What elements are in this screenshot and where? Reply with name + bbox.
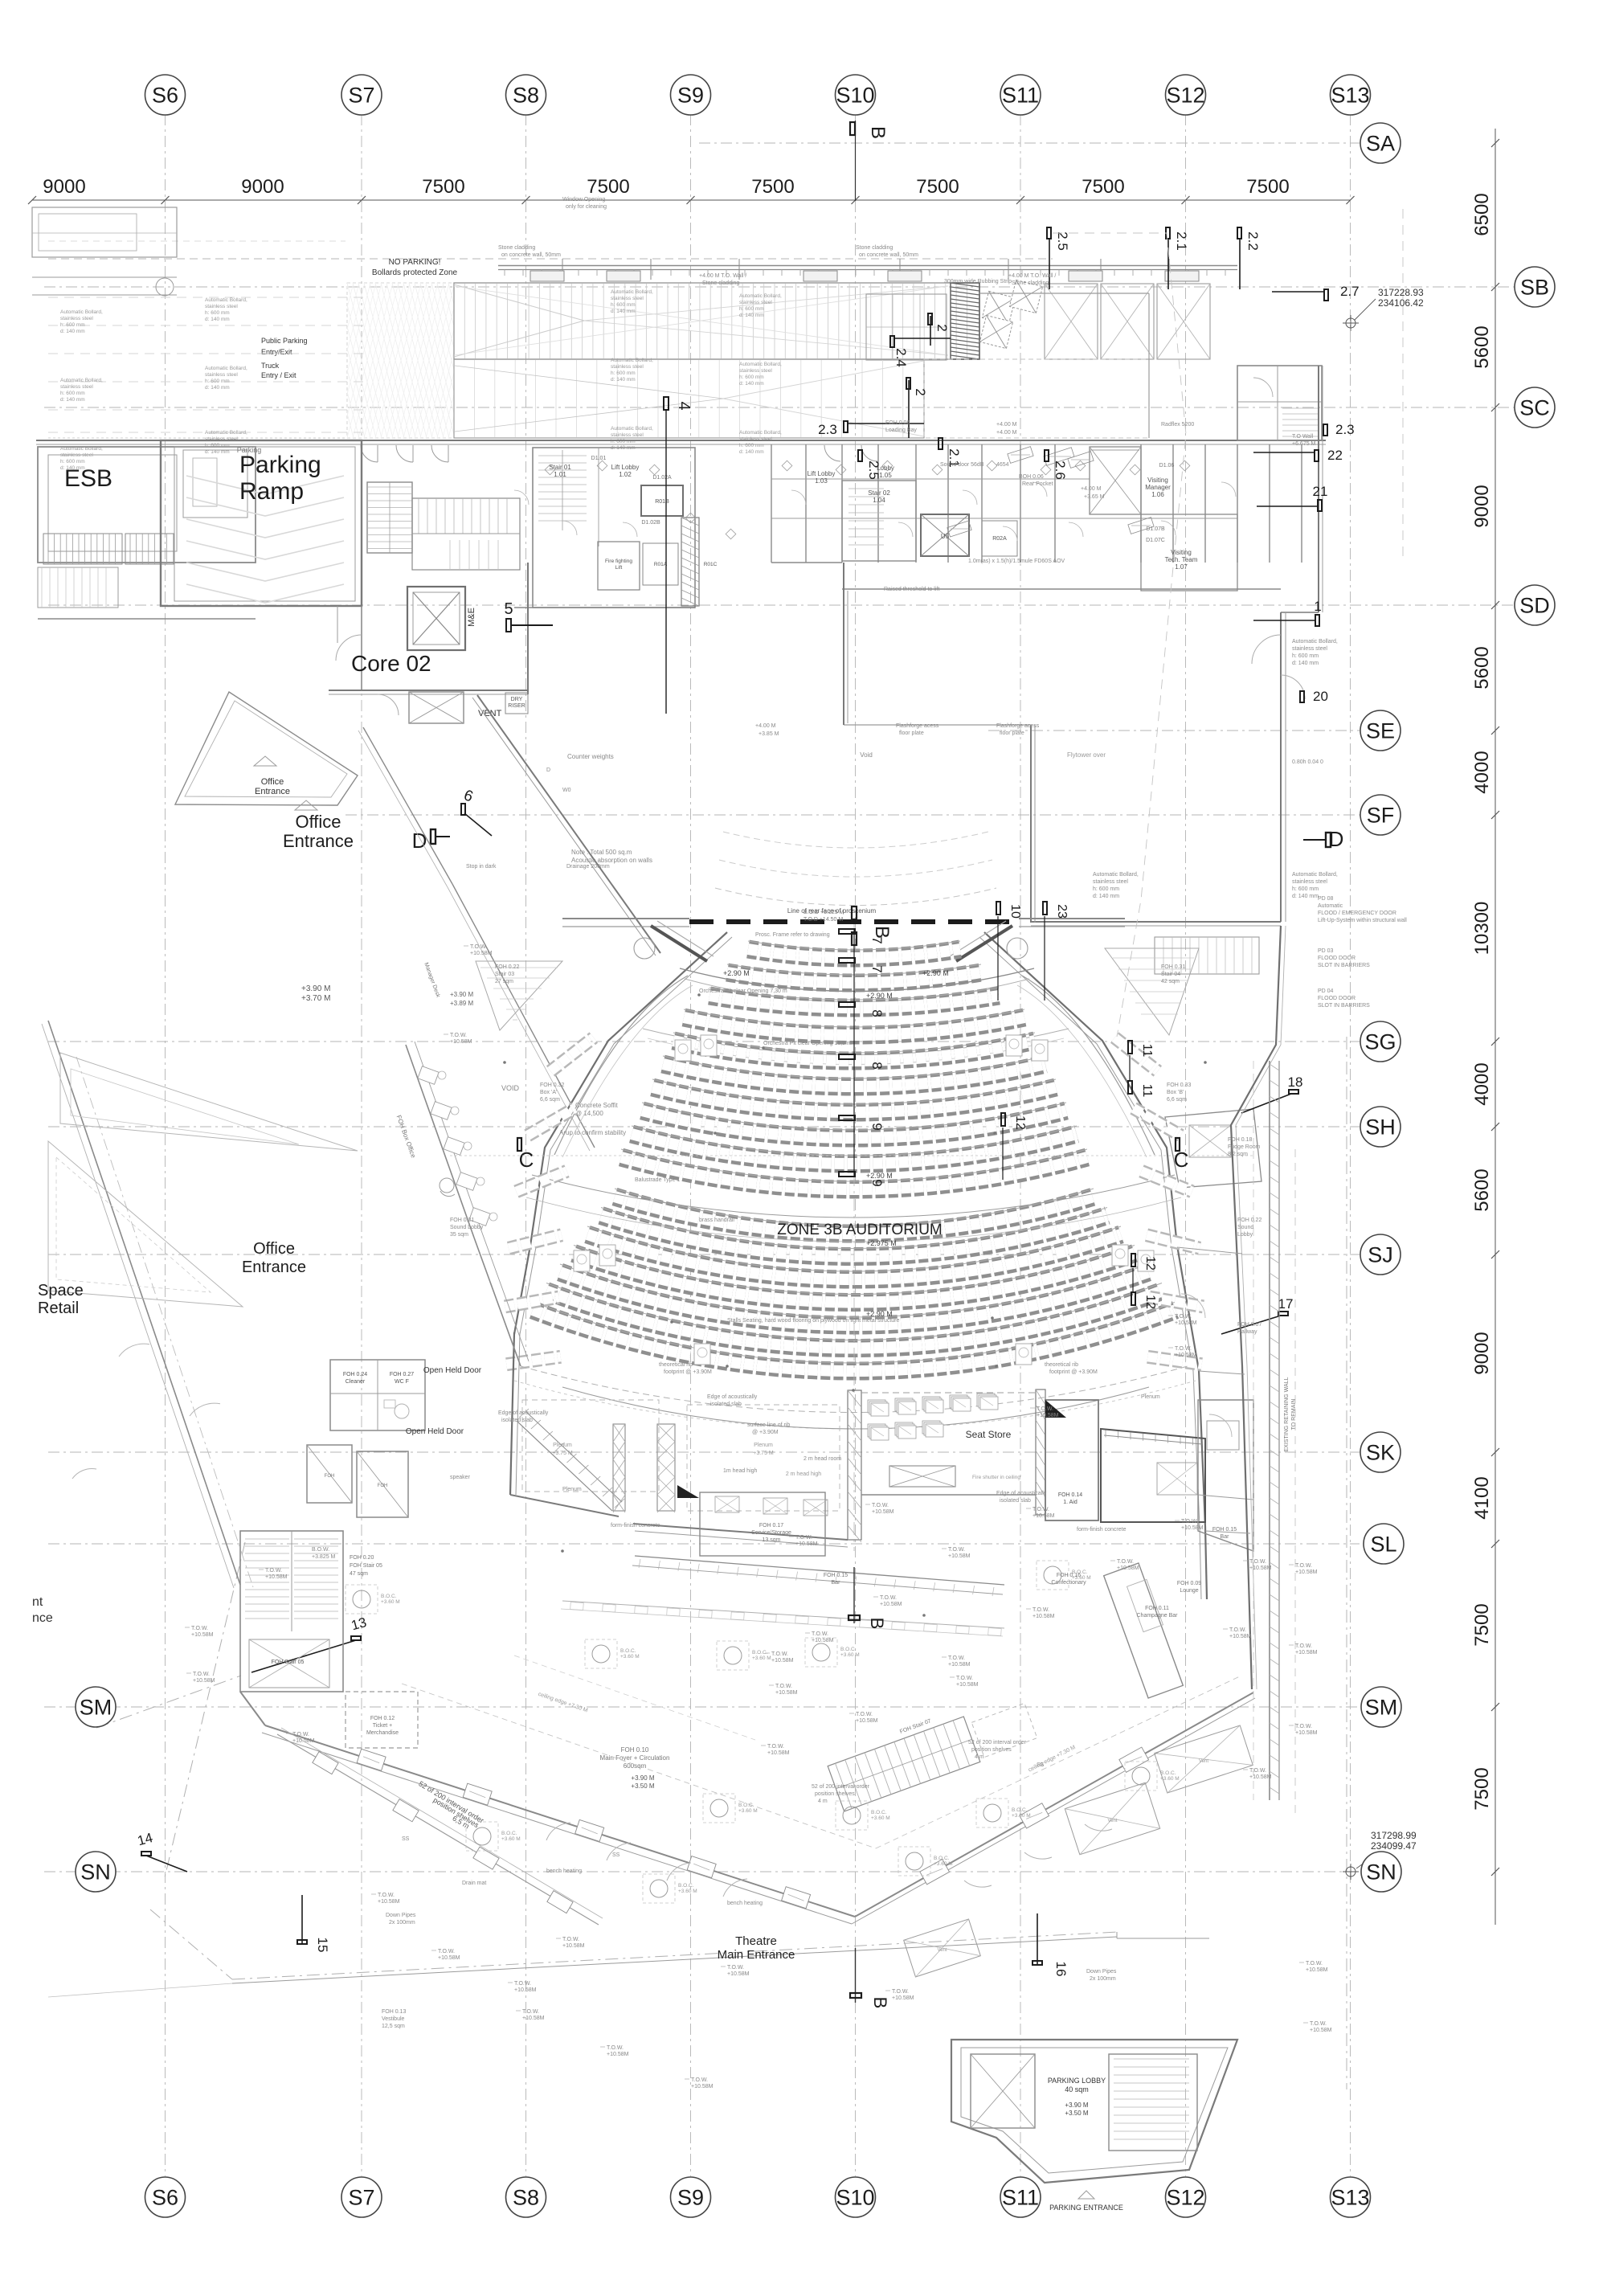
svg-text:+10.58M: +10.58M [775,1690,798,1696]
svg-text:22: 22 [1327,448,1343,463]
svg-text:d: 140 mm: d: 140 mm [611,309,636,314]
svg-text:Vestibule: Vestibule [382,2016,405,2022]
svg-text:brass handrail: brass handrail [699,1218,734,1223]
svg-text:2 m head room: 2 m head room [803,1456,841,1462]
svg-text:SLOT IN BARRIERS: SLOT IN BARRIERS [1318,963,1370,968]
svg-text:FLOOD DOOR: FLOOD DOOR [1318,956,1356,961]
svg-text:Lift: Lift [615,565,623,571]
svg-text:+6.675 M: +6.675 M [1292,441,1316,447]
svg-text:7500: 7500 [1082,176,1124,198]
svg-text:Edge of acoustically: Edge of acoustically [707,1394,758,1400]
svg-text:D1.07C: D1.07C [1146,538,1165,543]
svg-text:T.O.W.: T.O.W. [1310,2021,1327,2027]
svg-text:FLOOD / EMERGENCY DOOR: FLOOD / EMERGENCY DOOR [1318,911,1396,916]
svg-text:15: 15 [315,1938,330,1953]
svg-text:Flytower over: Flytower over [1067,751,1106,759]
svg-text:B.O.C.: B.O.C. [934,1856,950,1861]
svg-text:stainless steel: stainless steel [1292,879,1327,885]
svg-text:T.O.W.: T.O.W. [1032,1507,1049,1512]
svg-text:S8: S8 [513,2186,539,2210]
svg-text:T.O.W.: T.O.W. [1249,1768,1266,1774]
svg-text:SE: SE [1366,719,1395,743]
svg-text:d: 140 mm: d: 140 mm [1093,894,1119,899]
svg-text:+10.58M: +10.58M [470,951,493,956]
svg-text:9: 9 [869,1179,885,1186]
svg-text:FOH 0.13: FOH 0.13 [382,2009,406,2015]
svg-text:Truck: Truck [261,362,280,370]
svg-text:FOH 0.06: FOH 0.06 [885,420,910,426]
svg-text:+2.90 M: +2.90 M [922,969,949,977]
svg-text:PARKING ENTRANCE: PARKING ENTRANCE [1049,2204,1123,2212]
svg-text:7500: 7500 [1471,1603,1493,1646]
svg-text:2.4: 2.4 [893,348,909,367]
svg-text:Automatic Bollard,: Automatic Bollard, [205,430,247,436]
svg-text:+3.90 M: +3.90 M [301,984,330,993]
svg-text:Cleaner: Cleaner [346,1379,366,1385]
svg-text:T.O.W.: T.O.W. [856,1712,873,1717]
svg-text:FOH Stair 05: FOH Stair 05 [272,1660,305,1665]
svg-text:Automatic Bollard,: Automatic Bollard, [1292,639,1338,645]
svg-text:Orchestra Pit clear Opening 16: Orchestra Pit clear Opening 16,5 m [763,1041,852,1046]
svg-text:+3.75 M: +3.75 M [753,1451,774,1456]
svg-text:@ +3.90M: @ +3.90M [752,1430,779,1435]
svg-text:TO REMAIN: TO REMAIN [1291,1399,1297,1430]
svg-text:ZONE 3B AUDITORIUM: ZONE 3B AUDITORIUM [777,1222,943,1238]
svg-text:T.O.W.: T.O.W. [1229,1627,1246,1633]
svg-text:9: 9 [869,1123,885,1130]
svg-text:12: 12 [1143,1256,1157,1271]
svg-text:7: 7 [869,965,885,972]
svg-text:S7: S7 [348,2186,374,2210]
svg-text:PD 08: PD 08 [1318,896,1334,902]
svg-text:2.6: 2.6 [1053,460,1068,480]
svg-text:stainless steel: stainless steel [205,372,238,378]
svg-text:Visiting: Visiting [1147,477,1168,484]
svg-text:+4.00 M T.O. Wall /: +4.00 M T.O. Wall / [699,273,746,279]
svg-text:Entry / Exit: Entry / Exit [261,371,296,379]
svg-text:S9: S9 [677,84,704,108]
svg-text:Office: Office [253,1240,295,1258]
svg-text:floor plate: floor plate [899,731,924,736]
svg-text:+10.58M: +10.58M [450,1039,472,1045]
svg-text:+10.58M: +10.58M [1295,1650,1318,1655]
svg-text:+3.60 M: +3.60 M [1012,1813,1031,1819]
svg-text:+3.60 M: +3.60 M [738,1808,758,1814]
svg-text:T.O.W.: T.O.W. [522,2009,539,2015]
svg-text:nt: nt [32,1595,43,1609]
svg-text:Automatic Bollard,: Automatic Bollard, [611,358,653,363]
svg-text:+3.50 M: +3.50 M [1065,2110,1088,2117]
svg-text:d: 140 mm: d: 140 mm [739,449,764,455]
svg-text:Entry/Exit: Entry/Exit [261,348,292,356]
svg-text:+3.90 M: +3.90 M [631,1774,654,1782]
svg-text:Entrance: Entrance [255,787,290,796]
svg-text:stainless steel: stainless steel [205,304,238,309]
svg-text:h: 600 mm: h: 600 mm [205,310,230,316]
svg-text:Loading Bay: Loading Bay [885,428,917,433]
svg-text:B.O.C.: B.O.C. [1072,1570,1088,1575]
svg-text:+10.58M: +10.58M [1249,1774,1272,1780]
svg-text:Stone cladding: Stone cladding [856,245,893,251]
svg-text:Bar: Bar [1221,1534,1230,1540]
svg-text:2x 100mm: 2x 100mm [389,1920,415,1926]
svg-text:R01B: R01B [655,499,669,505]
svg-text:Open Held Door: Open Held Door [423,1366,482,1375]
svg-text:7: 7 [869,936,885,943]
svg-text:position shelves: position shelves [815,1791,855,1797]
svg-text:27 sqm: 27 sqm [495,979,513,984]
svg-text:Merchandise: Merchandise [366,1730,399,1736]
svg-text:+3.60 M: +3.60 M [752,1655,771,1661]
svg-text:B.O.C.: B.O.C. [501,1831,517,1836]
svg-text:nce: nce [32,1611,53,1625]
svg-text:Drain mat: Drain mat [462,1881,486,1886]
svg-text:FOH 0.07: FOH 0.07 [1237,1322,1261,1328]
svg-text:Fire fighting: Fire fighting [605,559,632,564]
svg-text:23: 23 [1055,904,1069,919]
svg-text:D1.02B: D1.02B [641,520,660,526]
svg-text:FOH 0.15: FOH 0.15 [824,1573,848,1578]
svg-text:h: 600 mm: h: 600 mm [60,391,85,396]
svg-text:FOH 0.31: FOH 0.31 [1161,964,1185,970]
svg-text:+4.00 M: +4.00 M [1081,486,1102,492]
svg-text:T.O.W.: T.O.W. [775,1684,792,1689]
svg-text:+3.90 M: +3.90 M [450,991,473,998]
svg-text:47 sqm: 47 sqm [350,1571,368,1577]
svg-text:T.O.W.: T.O.W. [514,1981,531,1987]
svg-text:+2.90 M: +2.90 M [723,969,750,977]
svg-text:+10.58M: +10.58M [880,1602,902,1607]
svg-text:Retail: Retail [38,1299,79,1317]
svg-text:12: 12 [1143,1295,1157,1309]
svg-text:2.7: 2.7 [1340,284,1360,299]
svg-text:18: 18 [1288,1074,1303,1090]
svg-text:9000: 9000 [43,176,85,198]
svg-text:S12: S12 [1166,2186,1204,2210]
svg-text:T.O.W.: T.O.W. [771,1651,788,1657]
svg-text:FOH 0.33: FOH 0.33 [1167,1083,1191,1088]
svg-text:+10.58M: +10.58M [193,1678,215,1684]
svg-text:Box 'B': Box 'B' [1167,1090,1184,1095]
svg-text:+10.58M: +10.58M [771,1658,794,1664]
svg-text:Drainage 200mm: Drainage 200mm [566,864,610,870]
svg-text:SS: SS [1037,1762,1045,1768]
svg-text:+10.58M: +10.58M [1295,1570,1318,1575]
svg-text:SG: SG [1364,1030,1396,1054]
svg-text:Automatic Bollard,: Automatic Bollard, [739,293,782,299]
svg-text:T.O.W.: T.O.W. [450,1033,467,1038]
svg-text:Office: Office [295,812,341,832]
svg-text:Stair 04: Stair 04 [1161,972,1180,977]
svg-text:SM: SM [80,1696,112,1720]
svg-text:1.06: 1.06 [1151,491,1164,498]
svg-text:d: 140 mm: d: 140 mm [60,329,85,334]
svg-text:Automatic Bollard,: Automatic Bollard, [60,309,103,315]
svg-text:S10: S10 [836,2186,874,2210]
svg-text:h: 600 mm: h: 600 mm [739,306,764,312]
svg-text:S11: S11 [1002,84,1039,108]
svg-text:5600: 5600 [1471,325,1493,368]
svg-text:+10.58M: +10.58M [1037,1413,1059,1418]
svg-text:stainless steel: stainless steel [739,368,772,374]
svg-text:5600: 5600 [1471,1168,1493,1211]
svg-text:SA: SA [1366,132,1395,156]
svg-text:Rear Pocket: Rear Pocket [1022,481,1053,487]
svg-text:Concrete Soffit: Concrete Soffit [575,1102,619,1109]
svg-text:VOID: VOID [501,1084,520,1092]
svg-text:12: 12 [1013,1115,1027,1130]
svg-text:Ticket +: Ticket + [373,1723,392,1729]
svg-text:floor plate: floor plate [1000,731,1024,736]
svg-text:8: 8 [869,1009,885,1017]
svg-text:Lift Lobby: Lift Lobby [611,464,640,471]
svg-text:PARKING LOBBY: PARKING LOBBY [1048,2077,1106,2085]
svg-text:Main Entrance: Main Entrance [718,1948,795,1962]
svg-text:on concrete wall, 50mm: on concrete wall, 50mm [859,252,918,258]
svg-text:1: 1 [1314,599,1321,614]
svg-text:Core 02: Core 02 [351,651,431,676]
svg-text:FOH 0.14: FOH 0.14 [1058,1492,1082,1498]
svg-text:+10.58M: +10.58M [607,2052,629,2057]
svg-text:R01C: R01C [704,562,718,567]
svg-text:Public Parking: Public Parking [261,337,308,345]
svg-text:T.O.W.: T.O.W. [438,1949,455,1954]
svg-text:stainless steel: stainless steel [1292,646,1327,652]
svg-text:1.07: 1.07 [1175,563,1188,571]
svg-text:B.O.C.: B.O.C. [1160,1770,1176,1776]
svg-text:+10.58M: +10.58M [1175,1353,1197,1358]
svg-text:Arup to confirm stability: Arup to confirm stability [559,1129,626,1136]
svg-text:Sound Lobby: Sound Lobby [450,1225,484,1230]
svg-text:2.2: 2.2 [1245,231,1261,251]
svg-text:B.O.C.: B.O.C. [678,1883,694,1889]
svg-text:B.O.C.: B.O.C. [752,1650,768,1655]
svg-text:form-finish concrete: form-finish concrete [1077,1527,1127,1533]
svg-text:7500: 7500 [751,176,794,198]
svg-text:FOH 0.32: FOH 0.32 [540,1083,564,1088]
svg-text:T.O.W.: T.O.W. [956,1676,973,1681]
svg-text:+2.90 M: +2.90 M [866,1172,893,1180]
svg-text:D1.01: D1.01 [591,456,607,461]
svg-text:+4.00 M T.O. Wall /: +4.00 M T.O. Wall / [1008,273,1056,279]
svg-text:1.0m(as) x 1.5(h)/1.5mule FD60: 1.0m(as) x 1.5(h)/1.5mule FD60S AOV [968,559,1065,564]
svg-text:300mm wide Rubbing Strip: 300mm wide Rubbing Strip [944,279,1012,284]
svg-text:Space: Space [38,1282,84,1299]
svg-text:T.O.W.: T.O.W. [1117,1559,1134,1565]
svg-text:Stalls Seating, hard wood floo: Stalls Seating, hard wood flooring on pl… [727,1318,900,1324]
svg-text:NO PARKING!: NO PARKING! [389,258,441,267]
svg-text:S6: S6 [152,84,178,108]
svg-text:SLOT IN BARRIERS: SLOT IN BARRIERS [1318,1003,1370,1009]
svg-text:d: 140 mm: d: 140 mm [205,385,230,391]
svg-text:40 sqm: 40 sqm [1065,2085,1089,2093]
svg-text:S8: S8 [513,84,539,108]
svg-text:EXISTING RETAINING WALL: EXISTING RETAINING WALL [1284,1377,1290,1451]
svg-text:1m head high: 1m head high [723,1468,758,1474]
svg-text:ESB: ESB [64,465,112,492]
svg-text:Stair 02: Stair 02 [868,489,890,497]
svg-text:Stop in dark: Stop in dark [466,864,497,870]
svg-text:T.O.W.: T.O.W. [948,1655,965,1661]
svg-text:theoretical rib: theoretical rib [659,1362,693,1368]
svg-text:FOH 0.21: FOH 0.21 [450,1218,474,1223]
svg-text:SH: SH [1365,1115,1396,1140]
svg-text:12,5 sqm: 12,5 sqm [382,2024,405,2029]
svg-text:+3.75 M: +3.75 M [552,1451,573,1456]
svg-text:7500: 7500 [1471,1767,1493,1810]
svg-text:1.02: 1.02 [619,471,632,478]
svg-text:T.O.W.: T.O.W. [1295,1643,1312,1649]
svg-text:FOH 0.20: FOH 0.20 [350,1555,374,1561]
svg-text:11: 11 [1140,1044,1154,1058]
svg-text:Seat Store: Seat Store [966,1429,1012,1440]
svg-text:Void: Void [860,751,873,759]
svg-text:Theatre: Theatre [735,1934,777,1948]
svg-text:11: 11 [1140,1084,1154,1098]
svg-text:9000: 9000 [1471,1332,1493,1374]
svg-text:h: 600 mm: h: 600 mm [739,374,764,380]
svg-text:Parking: Parking [239,452,321,478]
svg-text:T.O.W.: T.O.W. [1175,1314,1192,1320]
svg-text:Fire shutter in ceiling: Fire shutter in ceiling [972,1475,1020,1480]
svg-text:T.O.W.: T.O.W. [691,2077,708,2083]
svg-text:PD 04: PD 04 [1318,988,1334,994]
svg-text:+10.58M: +10.58M [948,1553,971,1559]
svg-text:T.O.W.: T.O.W. [948,1547,965,1553]
svg-text:Automatic Bollard,: Automatic Bollard, [1292,872,1338,878]
svg-text:+10.58M: +10.58M [1032,1513,1055,1519]
svg-text:T.O.W.: T.O.W. [378,1893,395,1898]
svg-text:B.O.C.: B.O.C. [381,1594,397,1599]
svg-text:+3.60 M: +3.60 M [620,1654,640,1660]
svg-text:FOH 0.22: FOH 0.22 [495,964,519,970]
svg-text:@ 14,500: @ 14,500 [575,1110,603,1117]
svg-text:Plenum: Plenum [553,1443,572,1448]
svg-text:D: D [412,829,427,853]
svg-text:Radflex 5200: Radflex 5200 [1161,422,1194,428]
svg-text:Open Held Door: Open Held Door [406,1427,464,1436]
svg-text:T.O.W.: T.O.W. [1306,1961,1323,1967]
svg-text:T.O.W.: T.O.W. [1295,1724,1312,1729]
svg-text:SN: SN [80,1860,111,1885]
svg-text:10300: 10300 [1471,902,1493,956]
svg-text:stainless steel: stainless steel [611,296,644,301]
svg-text:B.O.W.: B.O.W. [312,1547,329,1553]
svg-text:only for cleaning: only for cleaning [566,204,607,210]
svg-text:Flashforge acess: Flashforge acess [896,723,939,729]
svg-text:Automatic Bollard,: Automatic Bollard, [1093,872,1139,878]
svg-text:d: 140 mm: d: 140 mm [1292,894,1319,899]
svg-text:B.O.D +5.125 M: B.O.D +5.125 M [803,910,844,915]
svg-text:Automatic Bollard,: Automatic Bollard, [739,362,782,367]
svg-text:T.O.D +14.50 M: T.O.D +14.50 M [803,917,843,923]
svg-text:+10.58M: +10.58M [812,1638,834,1643]
svg-text:S10: S10 [836,84,874,108]
svg-text:600sqm: 600sqm [624,1762,647,1770]
svg-text:d: 140 mm: d: 140 mm [739,381,764,387]
svg-text:+3.60 M: +3.60 M [1072,1575,1091,1581]
svg-text:FOH 0.27: FOH 0.27 [390,1372,414,1377]
svg-text:SD: SD [1519,594,1550,618]
svg-text:8,2 sqm: 8,2 sqm [1228,1152,1248,1157]
svg-text:1.03: 1.03 [815,477,828,485]
svg-text:+10.58M: +10.58M [522,2016,545,2021]
svg-text:+10.58M: +10.58M [795,1541,818,1547]
svg-text:stainless steel: stainless steel [739,300,772,305]
svg-text:1.04: 1.04 [873,497,885,504]
svg-text:+10.58M: +10.58M [1306,1967,1328,1973]
svg-text:Lift Lobby: Lift Lobby [808,470,836,477]
svg-text:+10.58M: +10.58M [872,1509,894,1515]
svg-text:Ramp: Ramp [239,478,304,505]
svg-text:RISER: RISER [508,703,525,709]
svg-text:+10.58M: +10.58M [292,1738,315,1744]
svg-text:FOH 0.09: FOH 0.09 [1177,1581,1201,1586]
svg-text:+4.00 M: +4.00 M [996,422,1017,428]
svg-text:9000: 9000 [1471,485,1493,527]
svg-text:2.1: 2.1 [1174,231,1189,251]
svg-text:234106.42: 234106.42 [1378,297,1424,309]
svg-text:SB: SB [1520,276,1549,300]
svg-text:Lounge: Lounge [1180,1588,1198,1594]
svg-text:S13: S13 [1331,84,1369,108]
svg-text:d: 140 mm: d: 140 mm [1292,661,1319,666]
svg-text:T.O.W.: T.O.W. [892,1989,909,1995]
svg-text:4654: 4654 [996,462,1009,468]
svg-text:+10.58M: +10.58M [1229,1634,1252,1639]
svg-text:+10.58M: +10.58M [956,1682,979,1688]
svg-text:speaker: speaker [450,1475,471,1480]
svg-text:SF: SF [1367,804,1395,828]
svg-text:Automatic Bollard,: Automatic Bollard, [60,378,103,383]
svg-text:Stone cladding: Stone cladding [1012,280,1049,286]
svg-text:R01A: R01A [654,562,668,567]
svg-text:2.5: 2.5 [866,460,881,480]
svg-text:Lift-Up-System within structur: Lift-Up-System within structural wall [1318,918,1407,923]
svg-text:2: 2 [913,388,928,395]
svg-text:8: 8 [869,1062,885,1069]
svg-text:T.O.W.: T.O.W. [1295,1563,1312,1569]
svg-text:Edge of acoustically: Edge of acoustically [996,1491,1047,1496]
svg-text:FOH 0.22: FOH 0.22 [1237,1218,1261,1223]
svg-text:+10.58M: +10.58M [727,1971,750,1977]
svg-text:234099.47: 234099.47 [1371,1840,1417,1852]
svg-text:+3.60 M: +3.60 M [1160,1776,1180,1782]
svg-text:WC F: WC F [395,1379,409,1385]
svg-text:bench heating: bench heating [546,1868,582,1874]
svg-text:B: B [870,1997,890,2009]
svg-text:stainless steel: stainless steel [60,316,93,321]
svg-text:B: B [867,1618,887,1630]
svg-text:h: 600 mm: h: 600 mm [611,370,636,376]
svg-text:16: 16 [1053,1962,1069,1977]
svg-text:52 of 200 interval order: 52 of 200 interval order [968,1740,1027,1746]
svg-text:7500: 7500 [422,176,464,198]
svg-text:6,6 sqm: 6,6 sqm [1167,1097,1187,1103]
svg-text:Automatic: Automatic [1318,903,1343,909]
svg-text:Vent: Vent [1107,1819,1117,1823]
svg-text:T.O.W.: T.O.W. [470,944,487,950]
svg-text:6500: 6500 [1471,193,1493,235]
svg-text:FOH 0.18: FOH 0.18 [1228,1137,1252,1143]
svg-text:1.01: 1.01 [554,471,566,478]
svg-text:T.O.W.: T.O.W. [1032,1607,1049,1613]
svg-text:Parking: Parking [237,446,262,454]
svg-text:21: 21 [1313,484,1328,499]
svg-text:+2.90 M: +2.90 M [866,1310,893,1318]
svg-text:Sound: Sound [1237,1225,1253,1230]
svg-text:+3.85 M: +3.85 M [759,731,779,737]
